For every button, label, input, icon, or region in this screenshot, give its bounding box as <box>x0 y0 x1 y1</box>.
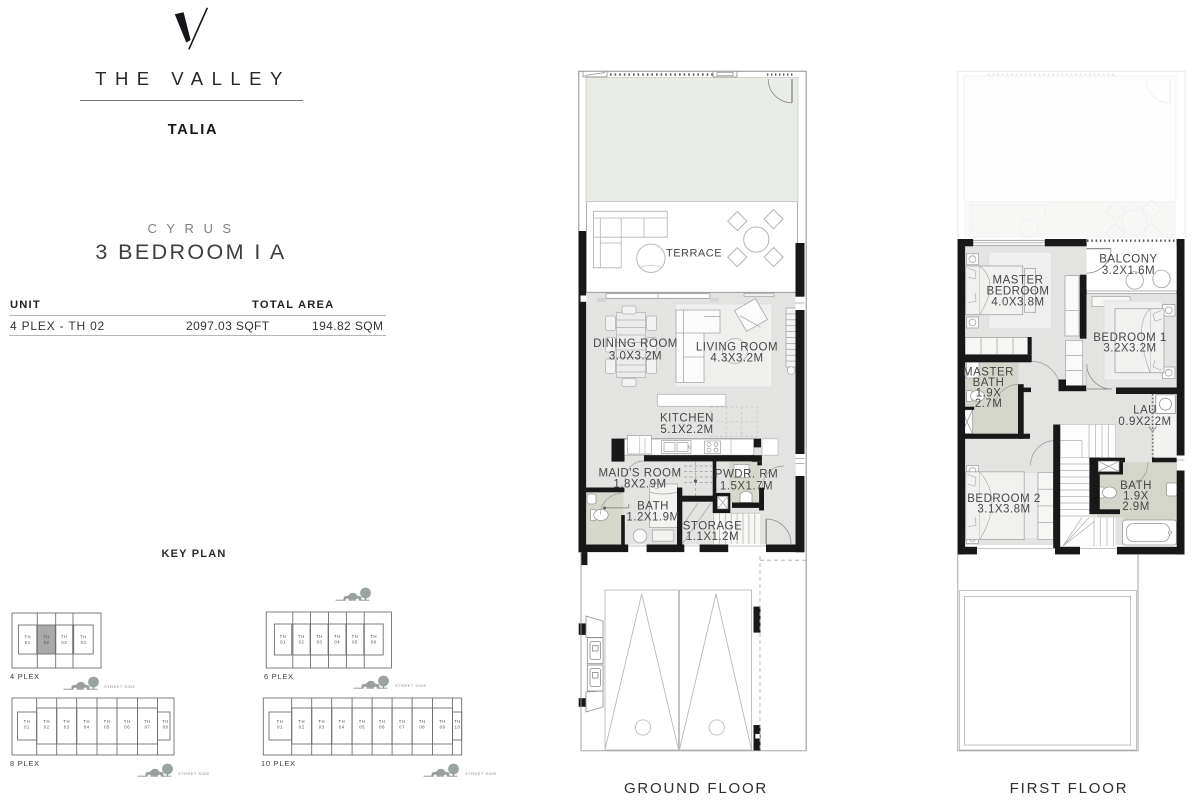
svg-text:DINING ROOM: DINING ROOM <box>593 338 678 350</box>
svg-text:06: 06 <box>379 725 385 730</box>
svg-text:08: 08 <box>163 725 169 730</box>
svg-text:TH: TH <box>43 635 50 640</box>
svg-text:TH: TH <box>334 634 341 639</box>
svg-text:8 PLEX: 8 PLEX <box>10 759 40 768</box>
svg-text:TH: TH <box>298 634 305 639</box>
svg-text:02: 02 <box>44 725 50 730</box>
svg-text:TH: TH <box>80 635 87 640</box>
svg-text:TH: TH <box>280 634 287 639</box>
svg-text:6 PLEX: 6 PLEX <box>264 672 294 681</box>
svg-text:10 PLEX: 10 PLEX <box>261 759 296 768</box>
svg-text:4.0X3.8M: 4.0X3.8M <box>991 297 1044 309</box>
svg-text:PWDR. RM: PWDR. RM <box>715 469 778 481</box>
svg-text:04: 04 <box>84 725 90 730</box>
svg-text:TERRACE: TERRACE <box>666 248 722 260</box>
svg-text:07: 07 <box>399 725 405 730</box>
svg-text:BALCONY: BALCONY <box>1099 254 1157 266</box>
svg-text:TH: TH <box>316 634 323 639</box>
svg-text:0.9X2.2M: 0.9X2.2M <box>1118 416 1171 428</box>
svg-text:STREET SIDE: STREET SIDE <box>395 683 427 688</box>
svg-text:02: 02 <box>299 725 305 730</box>
svg-text:03: 03 <box>317 640 323 645</box>
svg-text:1.8X2.9M: 1.8X2.9M <box>613 479 666 491</box>
svg-text:TH: TH <box>370 634 377 639</box>
svg-text:TH: TH <box>399 719 406 724</box>
svg-text:4 PLEX: 4 PLEX <box>10 672 40 681</box>
svg-text:05: 05 <box>359 725 365 730</box>
svg-text:01: 01 <box>277 725 283 730</box>
svg-text:TH: TH <box>63 719 70 724</box>
svg-text:03: 03 <box>61 640 67 645</box>
svg-text:1.2X1.9M: 1.2X1.9M <box>626 512 679 524</box>
svg-text:TH: TH <box>83 719 90 724</box>
svg-text:LAU: LAU <box>1133 405 1157 417</box>
svg-text:1.1X1.2M: 1.1X1.2M <box>686 531 739 543</box>
svg-text:04: 04 <box>334 640 340 645</box>
svg-text:1.5X1.7M: 1.5X1.7M <box>720 481 773 493</box>
svg-text:TH: TH <box>43 719 50 724</box>
svg-text:KITCHEN: KITCHEN <box>660 413 714 425</box>
svg-text:01: 01 <box>25 640 31 645</box>
svg-text:5.1X2.2M: 5.1X2.2M <box>660 424 713 436</box>
svg-text:01: 01 <box>280 640 286 645</box>
svg-text:2.7M: 2.7M <box>975 398 1003 410</box>
svg-text:01: 01 <box>24 725 30 730</box>
svg-text:3.2X1.6M: 3.2X1.6M <box>1102 265 1155 277</box>
svg-text:3.1X3.8M: 3.1X3.8M <box>977 504 1030 516</box>
svg-text:4.3X3.2M: 4.3X3.2M <box>710 353 763 365</box>
svg-text:TH: TH <box>144 719 151 724</box>
svg-text:TH: TH <box>298 719 305 724</box>
svg-text:TH: TH <box>454 719 461 724</box>
svg-text:05: 05 <box>352 640 358 645</box>
svg-text:04: 04 <box>339 725 345 730</box>
svg-text:TH: TH <box>162 719 169 724</box>
svg-text:TH: TH <box>419 719 426 724</box>
svg-text:TH: TH <box>24 719 31 724</box>
svg-text:TH: TH <box>379 719 386 724</box>
svg-text:TH: TH <box>318 719 325 724</box>
svg-text:06: 06 <box>124 725 130 730</box>
svg-text:04: 04 <box>81 640 87 645</box>
svg-text:08: 08 <box>419 725 425 730</box>
svg-text:2.9M: 2.9M <box>1122 501 1150 513</box>
svg-text:02: 02 <box>44 640 50 645</box>
svg-text:TH: TH <box>104 719 111 724</box>
svg-text:03: 03 <box>319 725 325 730</box>
svg-text:TH: TH <box>277 719 284 724</box>
svg-text:TH: TH <box>24 635 31 640</box>
svg-text:03: 03 <box>64 725 70 730</box>
svg-text:TH: TH <box>61 635 68 640</box>
svg-text:STREET SIDE: STREET SIDE <box>104 684 136 689</box>
svg-text:STREET SIDE: STREET SIDE <box>465 771 497 776</box>
svg-text:07: 07 <box>145 725 151 730</box>
svg-text:02: 02 <box>299 640 305 645</box>
svg-text:3.2X3.2M: 3.2X3.2M <box>1103 343 1156 355</box>
svg-text:TH: TH <box>359 719 366 724</box>
svg-text:STREET SIDE: STREET SIDE <box>178 771 210 776</box>
svg-text:05: 05 <box>104 725 110 730</box>
svg-text:TH: TH <box>339 719 346 724</box>
svg-text:TH: TH <box>439 719 446 724</box>
svg-text:TH: TH <box>352 634 359 639</box>
svg-text:06: 06 <box>371 640 377 645</box>
svg-text:3.0X3.2M: 3.0X3.2M <box>609 351 662 363</box>
svg-text:10: 10 <box>455 725 461 730</box>
svg-text:09: 09 <box>440 725 446 730</box>
svg-text:TH: TH <box>124 719 131 724</box>
